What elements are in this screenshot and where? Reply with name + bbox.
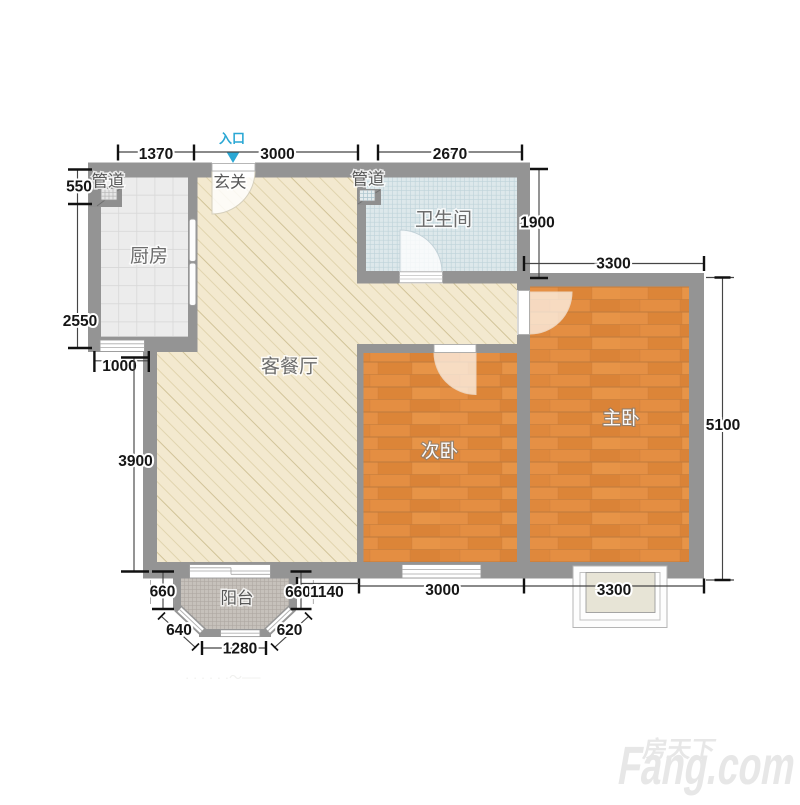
- svg-text:3000: 3000: [260, 146, 294, 163]
- svg-text:640: 640: [166, 622, 192, 639]
- svg-text:660: 660: [285, 584, 311, 601]
- svg-text:1900: 1900: [520, 215, 554, 232]
- svg-text:1370: 1370: [139, 146, 173, 163]
- svg-text:管道: 管道: [92, 172, 125, 191]
- svg-text:1000: 1000: [102, 358, 136, 375]
- svg-text:主卧: 主卧: [602, 408, 639, 429]
- svg-text:次卧: 次卧: [421, 441, 458, 462]
- svg-text:5100: 5100: [706, 417, 740, 434]
- svg-text:管道: 管道: [352, 170, 385, 189]
- svg-text:Fang.com: Fang.com: [614, 735, 800, 796]
- svg-text:1280: 1280: [223, 641, 257, 658]
- svg-text:2550: 2550: [63, 313, 97, 330]
- svg-text:· · · · · ·〜──: · · · · · ·〜──: [185, 670, 261, 685]
- svg-text:3300: 3300: [597, 582, 631, 599]
- svg-text:厨房: 厨房: [130, 245, 168, 267]
- svg-text:1140: 1140: [310, 584, 344, 601]
- svg-text:3900: 3900: [118, 453, 152, 470]
- svg-text:660: 660: [150, 584, 176, 601]
- svg-text:客餐厅: 客餐厅: [261, 356, 318, 378]
- svg-text:入口: 入口: [219, 131, 245, 146]
- svg-text:620: 620: [277, 622, 303, 639]
- svg-text:3000: 3000: [425, 582, 459, 599]
- svg-text:阳台: 阳台: [221, 589, 254, 608]
- svg-text:3300: 3300: [596, 256, 630, 273]
- svg-text:550: 550: [66, 179, 92, 196]
- svg-text:卫生间: 卫生间: [415, 209, 472, 231]
- svg-text:2670: 2670: [433, 146, 467, 163]
- svg-text:玄关: 玄关: [214, 173, 247, 192]
